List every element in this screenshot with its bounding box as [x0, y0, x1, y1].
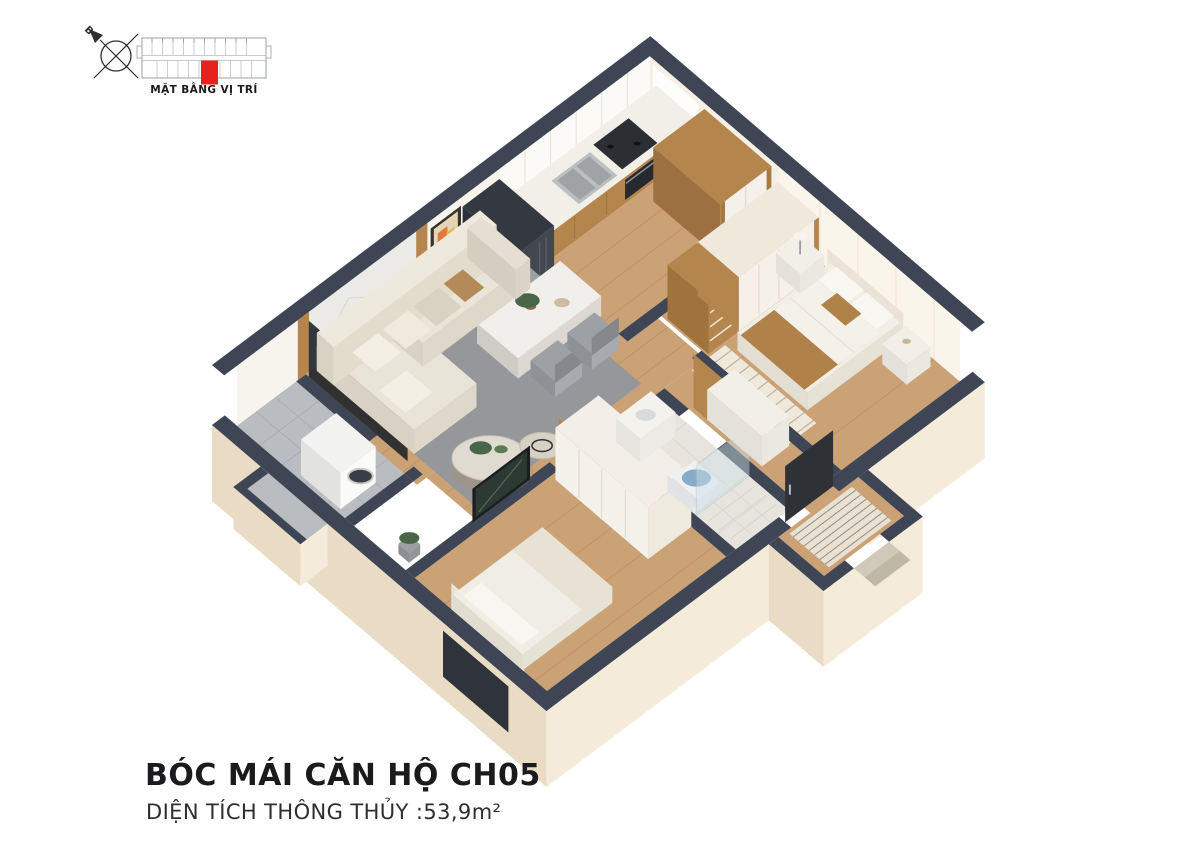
page-title: BÓC MÁI CĂN HỘ CH05 [145, 758, 541, 793]
floorplan-3d [212, 36, 985, 787]
page: B MẶT BẰNG VỊ TRÍ BÓC MÁI CĂN HỘ CH05 DI… [0, 0, 1200, 848]
scene-canvas: B [0, 0, 1200, 848]
north-compass-icon: B [82, 24, 138, 78]
locator-caption: MẶT BẰNG VỊ TRÍ [138, 84, 270, 96]
location-mini-plan [137, 38, 271, 85]
page-subtitle: DIỆN TÍCH THÔNG THỦY :53,9m² [146, 800, 501, 824]
locator-highlight-unit [201, 61, 218, 85]
